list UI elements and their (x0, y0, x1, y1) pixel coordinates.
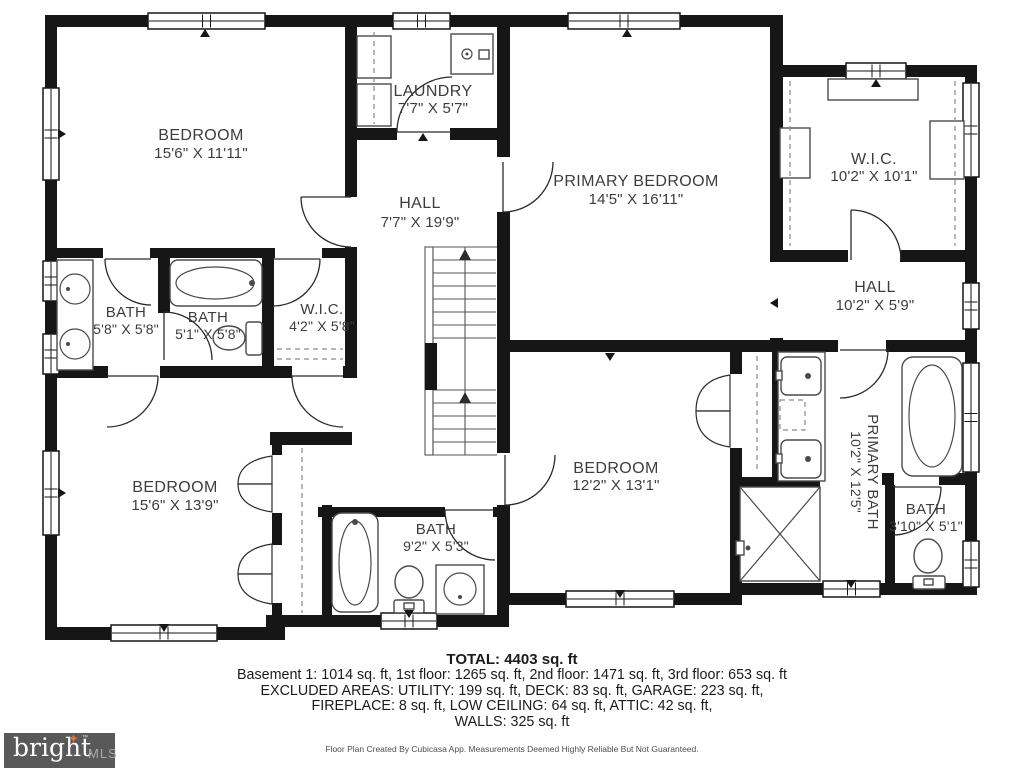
wall-segment (150, 248, 275, 258)
shower-icon (736, 487, 820, 581)
floor-plan-page: BEDROOM 15'6" X 11'11" LAUNDRY 7'7" X 5'… (0, 0, 1024, 768)
wall-segment (885, 485, 895, 593)
room-label: BATH (106, 304, 147, 321)
bathtub-icon (170, 260, 262, 306)
window-icon (846, 63, 906, 79)
room-dims: 10'2" X 10'1" (830, 168, 917, 185)
wall-segment (425, 343, 437, 390)
measure-arrow (58, 488, 66, 498)
wall-segment (345, 128, 397, 140)
room-dims: 5'1" X 5'8" (175, 326, 241, 342)
bifold-door-icon (238, 544, 272, 574)
room-label: BEDROOM (158, 127, 243, 144)
door-icon (301, 197, 351, 247)
room-label: PRIMARY BATH (864, 414, 881, 530)
wall-segment (886, 340, 977, 352)
door-icon (273, 259, 320, 306)
wall-segment (450, 128, 510, 140)
door-arc (105, 259, 151, 305)
bifold-door-icon (238, 456, 272, 484)
measure-arrow (58, 129, 66, 139)
measure-arrow (770, 298, 778, 308)
wall-segment (45, 248, 103, 258)
room-dims: 14'5" X 16'11" (589, 191, 684, 208)
window-icon (148, 13, 265, 29)
brightmls-suffix-text: MLS (88, 746, 118, 761)
door-arc (107, 376, 158, 427)
wall-segment (730, 352, 742, 374)
measure-arrow (622, 29, 632, 37)
wall-segment (497, 505, 510, 605)
brightmls-logo: bright ✦ ™ MLS (4, 733, 115, 768)
wall-segment (770, 15, 783, 77)
room-label: BATH (188, 309, 229, 326)
area-summary: TOTAL: 4403 sq. ft Basement 1: 1014 sq. … (0, 651, 1024, 730)
room-dims: 10'2" X 12'5" (848, 431, 864, 513)
room-dims: 10'2" X 5'9" (836, 297, 915, 314)
door-arc (505, 455, 555, 505)
door-icon (851, 210, 901, 260)
room-dims: 4'2" X 5'8" (289, 318, 355, 334)
wall-segment (322, 505, 332, 625)
room-label: BATH (416, 521, 457, 538)
window-icon (43, 451, 59, 535)
excluded-areas-1: EXCLUDED AREAS: UTILITY: 199 sq. ft, DEC… (0, 684, 1024, 700)
bathtub-icon (902, 357, 962, 476)
window-icon (393, 13, 450, 29)
door-arc (851, 210, 901, 260)
double-vanity-icon (776, 352, 825, 481)
bathtub-icon (332, 513, 378, 612)
wall-segment (262, 258, 274, 366)
wall-segment (882, 473, 894, 485)
stair-up-arrow (459, 249, 471, 260)
room-dims: 7'7" X 19'9" (381, 214, 460, 231)
door-icon (505, 455, 555, 505)
window-icon (568, 13, 680, 29)
window-icon (963, 83, 979, 177)
wall-segment (900, 250, 977, 262)
room-dims: 7'7" X 5'7" (398, 100, 468, 117)
room-label: HALL (399, 195, 441, 212)
wall-segment (783, 250, 848, 262)
window-icon (963, 283, 979, 329)
wall-segment (272, 513, 282, 545)
room-dims: 9'2" X 5'3" (403, 538, 469, 554)
floor-areas: Basement 1: 1014 sq. ft, 1st floor: 1265… (0, 668, 1024, 684)
window-icon (43, 88, 59, 180)
measure-arrow (200, 29, 210, 37)
floor-plan: BEDROOM 15'6" X 11'11" LAUNDRY 7'7" X 5'… (0, 0, 1024, 648)
room-labels: BEDROOM 15'6" X 11'11" LAUNDRY 7'7" X 5'… (93, 83, 963, 554)
wall-segment (272, 603, 282, 627)
room-label: BATH (906, 501, 947, 518)
wall-segment (497, 212, 510, 453)
room-dims: 15'6" X 11'11" (154, 145, 248, 162)
door-icon (105, 259, 151, 305)
door-arc (273, 259, 320, 306)
door-icon (107, 376, 158, 427)
door-arc (503, 162, 553, 212)
bifold-door-icon (238, 574, 272, 604)
door-icon (292, 376, 343, 427)
wall-segment (322, 248, 357, 258)
toilet-icon (913, 539, 945, 589)
stair-up-arrow (459, 392, 471, 403)
wall-segment (345, 15, 357, 197)
sink-icon (436, 565, 484, 614)
door-arc (301, 197, 351, 247)
room-label: PRIMARY BEDROOM (553, 173, 718, 190)
window-icon (963, 541, 979, 587)
brightmls-brand-text: bright (13, 733, 91, 762)
room-dims: 3'10" X 5'1" (889, 518, 963, 534)
door-icon (840, 350, 888, 398)
star-icon: ✦ (68, 731, 79, 747)
wall-segment (343, 366, 357, 378)
door-arc (292, 376, 343, 427)
disclaimer-text: Floor Plan Created By Cubicasa App. Meas… (0, 744, 1024, 754)
measure-arrow (418, 133, 428, 141)
wall-segment (345, 247, 357, 375)
door-icon (503, 162, 553, 212)
wall-segment (160, 366, 292, 378)
trademark-symbol: ™ (82, 735, 88, 741)
toilet-icon (394, 566, 424, 613)
measure-arrow (605, 353, 615, 361)
total-area: TOTAL: 4403 sq. ft (0, 651, 1024, 668)
bifold-door-icon (696, 411, 730, 447)
room-label: W.I.C. (300, 301, 343, 318)
laundry-sink-icon (451, 34, 493, 74)
wall-segment (497, 340, 838, 352)
room-label: BEDROOM (573, 460, 658, 477)
room-label: LAUNDRY (394, 83, 473, 100)
window-icon (963, 363, 979, 472)
double-sink-icon (57, 260, 93, 370)
room-dims: 5'8" X 5'8" (93, 321, 159, 337)
door-arc (840, 350, 888, 398)
wall-segment (493, 507, 510, 517)
walls-area: WALLS: 325 sq. ft (0, 715, 1024, 731)
room-label: HALL (854, 279, 896, 296)
excluded-areas-2: FIREPLACE: 8 sq. ft, LOW CEILING: 64 sq.… (0, 699, 1024, 715)
room-dims: 15'6" X 13'9" (131, 497, 218, 514)
room-label: W.I.C. (851, 151, 897, 168)
wall-segment (270, 432, 352, 445)
bifold-door-icon (696, 375, 730, 411)
room-label: BEDROOM (132, 479, 217, 496)
room-dims: 12'2" X 13'1" (572, 477, 659, 494)
bifold-door-icon (238, 484, 272, 512)
wall-segment (158, 258, 170, 313)
